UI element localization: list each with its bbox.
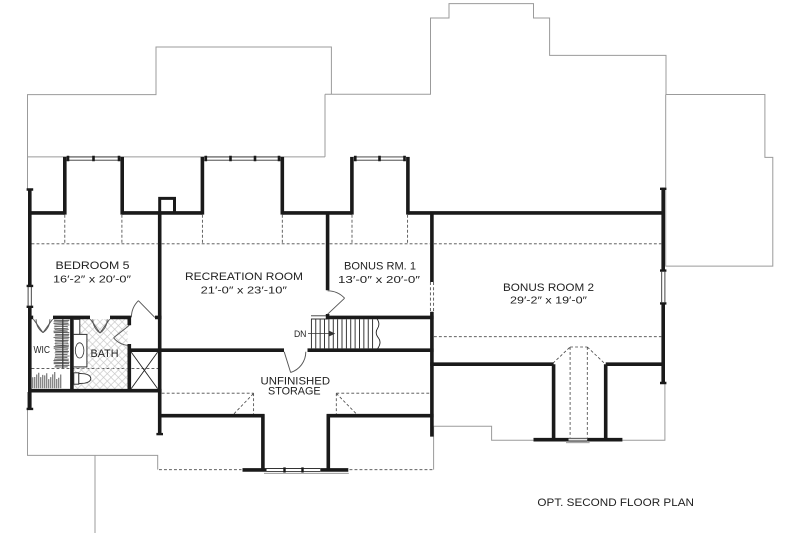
svg-text:29′-2″ x 19′-0″: 29′-2″ x 19′-0″ — [510, 295, 587, 306]
svg-text:13′-0″ x 20′-0″: 13′-0″ x 20′-0″ — [338, 275, 420, 286]
svg-text:WIC: WIC — [34, 345, 51, 356]
svg-text:BEDROOM 5: BEDROOM 5 — [56, 260, 130, 272]
svg-text:BONUS ROOM 2: BONUS ROOM 2 — [503, 282, 594, 294]
svg-text:16′-2″ x 20′-0″: 16′-2″ x 20′-0″ — [53, 275, 131, 286]
svg-text:BONUS RM. 1: BONUS RM. 1 — [344, 260, 416, 272]
svg-text:BATH: BATH — [91, 348, 119, 360]
svg-text:21′-0″ x 23′-10″: 21′-0″ x 23′-10″ — [201, 286, 288, 297]
svg-text:OPT. SECOND FLOOR PLAN: OPT. SECOND FLOOR PLAN — [537, 497, 694, 509]
svg-text:RECREATION ROOM: RECREATION ROOM — [185, 271, 303, 283]
svg-text:DN: DN — [294, 329, 307, 339]
svg-text:STORAGE: STORAGE — [268, 386, 321, 398]
